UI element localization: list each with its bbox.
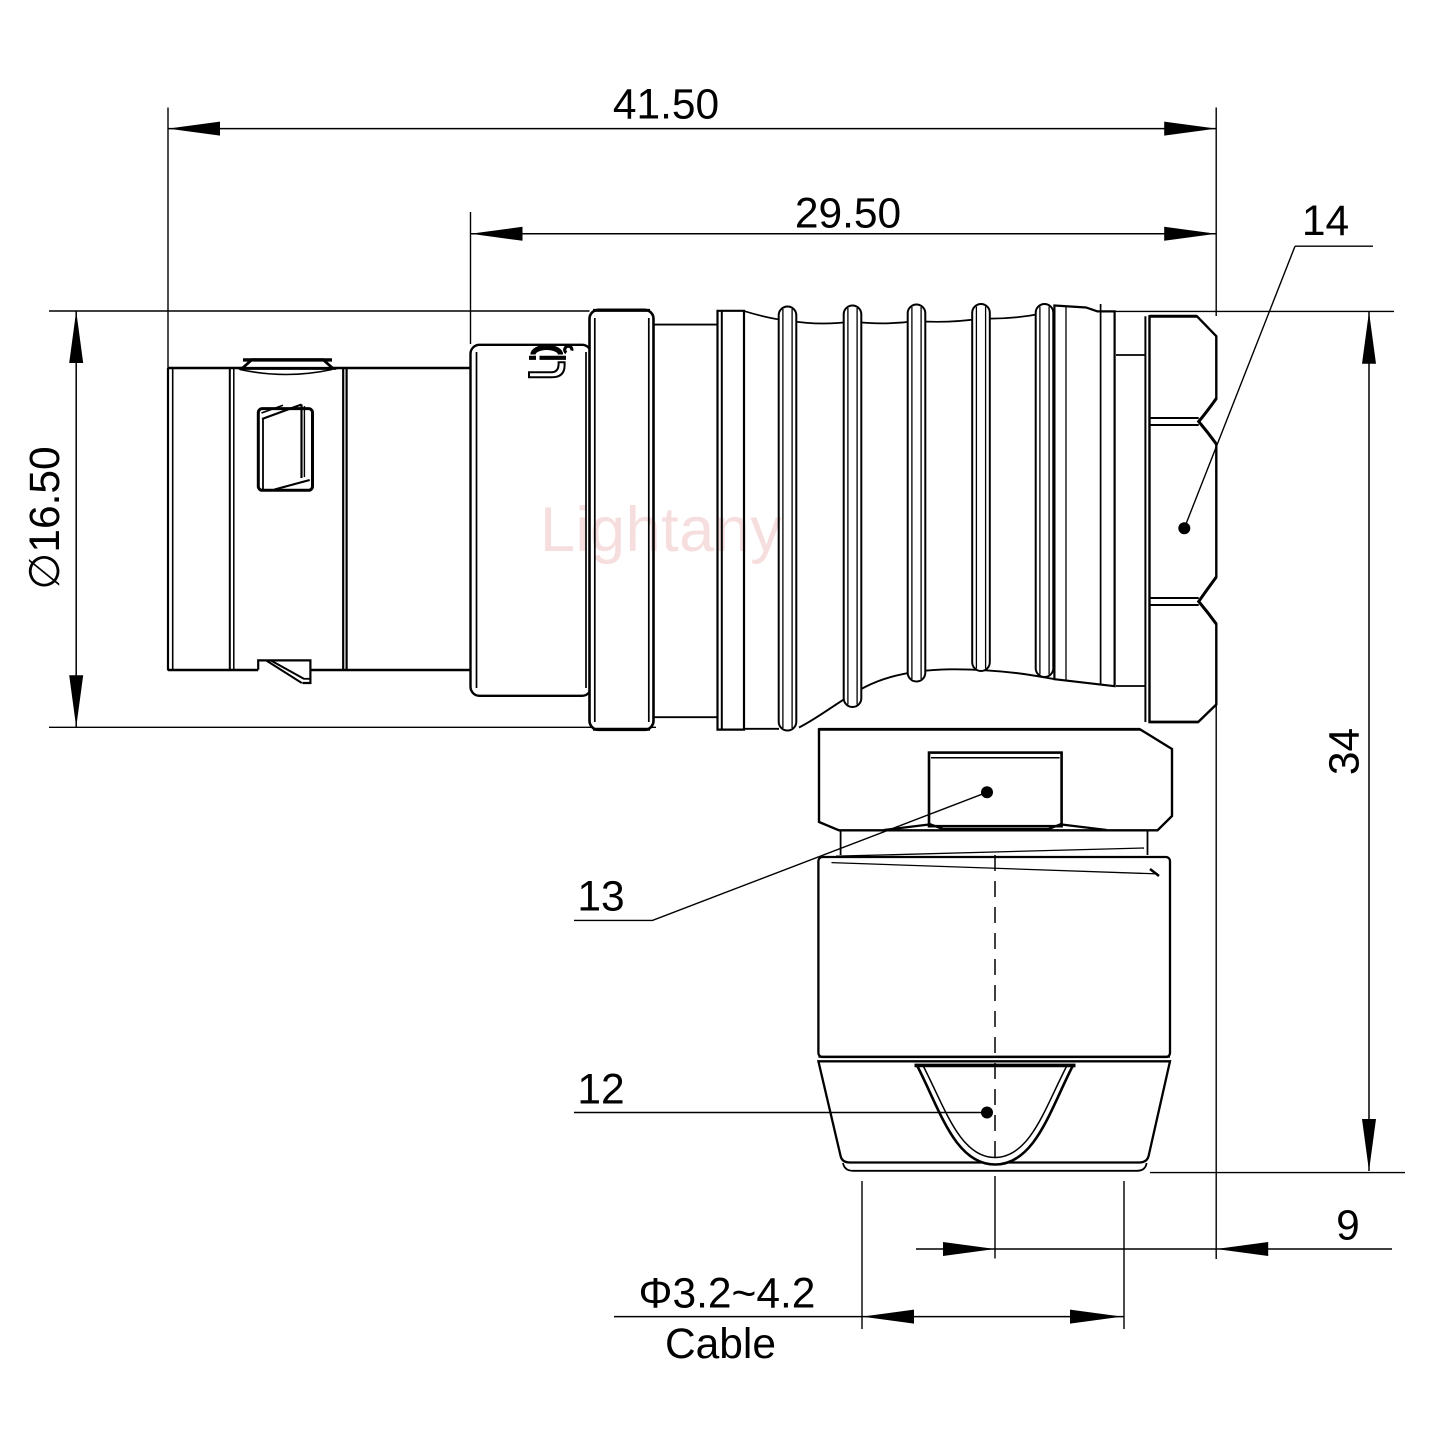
svg-text:∅16.50: ∅16.50 <box>22 446 69 589</box>
svg-text:14: 14 <box>1302 198 1349 245</box>
svg-text:Cable: Cable <box>665 1321 776 1368</box>
svg-text:41.50: 41.50 <box>613 82 719 129</box>
svg-text:12: 12 <box>577 1067 624 1114</box>
svg-text:9: 9 <box>1336 1203 1360 1250</box>
svg-text:29.50: 29.50 <box>795 191 901 238</box>
svg-text:Lightany: Lightany <box>540 495 782 565</box>
svg-text:Φ3.2~4.2: Φ3.2~4.2 <box>639 1271 816 1318</box>
svg-text:13: 13 <box>577 874 624 921</box>
svg-text:34: 34 <box>1322 728 1369 775</box>
